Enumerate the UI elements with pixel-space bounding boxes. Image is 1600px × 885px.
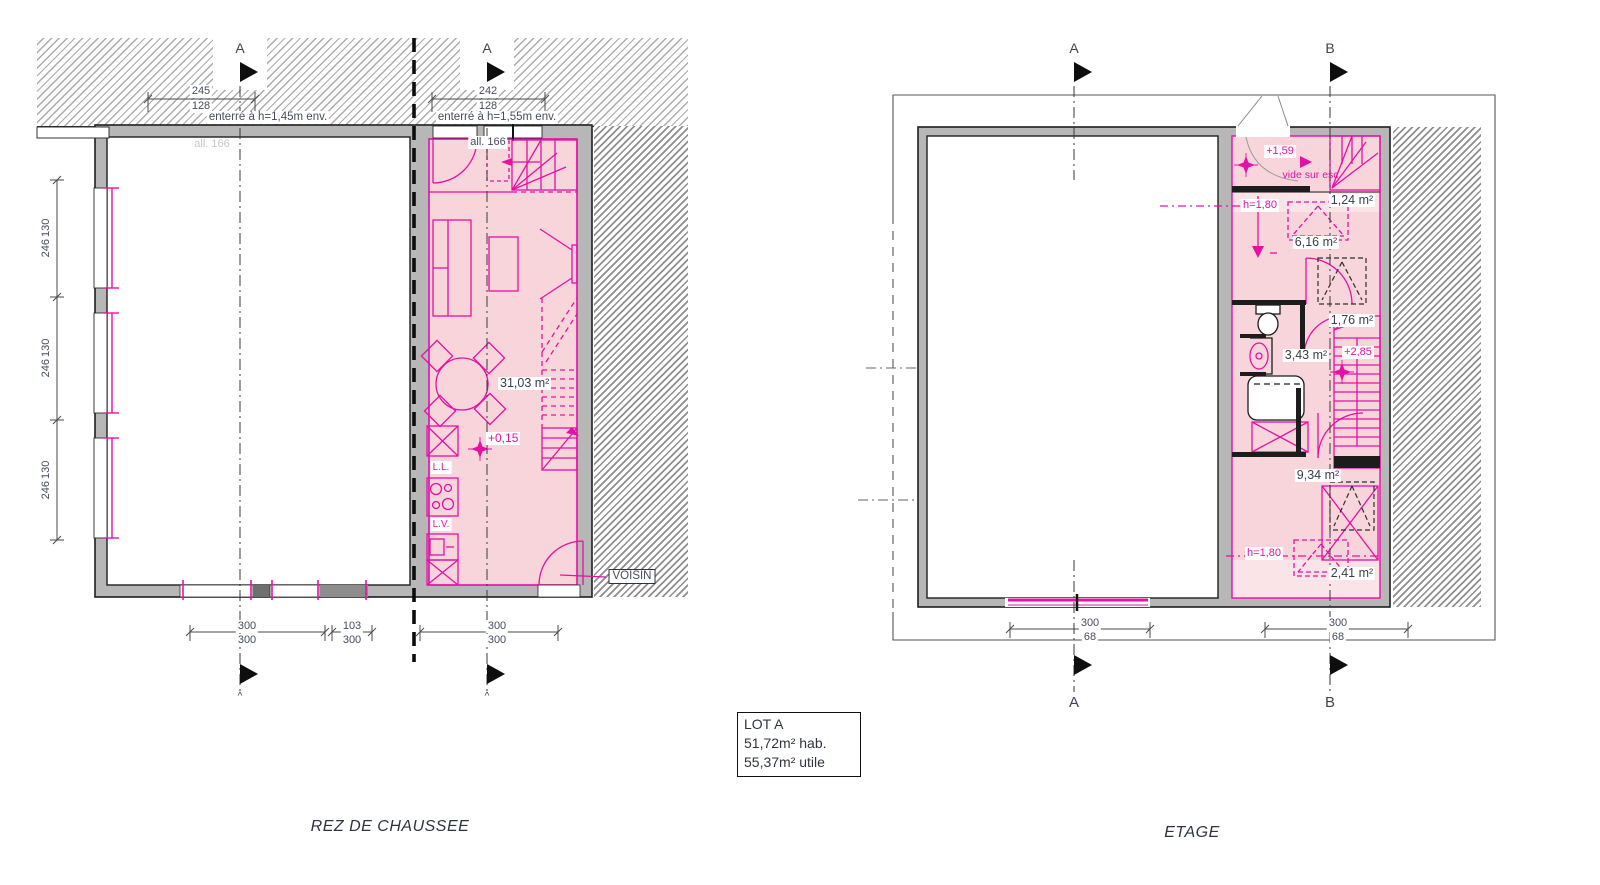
upper-void-label: vide sur esc. [1283, 169, 1342, 182]
ground-side-dim-1-bottom: 130 [40, 219, 52, 237]
ground-bdim3-bottom: 300 [486, 634, 508, 647]
upper-bdim2-top: 300 [1327, 617, 1349, 630]
ground-side-dim-2-top: 246 [40, 359, 52, 377]
ground-bdim2-bottom: 300 [341, 634, 363, 647]
ground-side-dim-2: 246 130 [40, 339, 52, 378]
ground-caret-right: ^ [485, 690, 490, 703]
upper-area-bath: 3,43 m² [1283, 349, 1329, 362]
upper-level-floor: +2,85 [1342, 346, 1374, 359]
upper-bdim1-top: 300 [1079, 617, 1101, 630]
upper-reference-lines [858, 368, 927, 500]
upper-floor-title: ETAGE [1164, 824, 1220, 842]
upper-area-bedroom: 9,34 m² [1295, 469, 1341, 482]
ground-building-walls [37, 125, 592, 597]
upper-area-closet-top: 1,24 m² [1329, 194, 1375, 207]
lot-area-utile: 55,37m² utile [744, 753, 854, 772]
ground-neighbor-label: VOISIN [609, 569, 656, 584]
ground-sill-label-faint: all. 166 [194, 138, 229, 151]
lot-area-hab: 51,72m² hab. [744, 734, 854, 753]
upper-section-marker-b-top: B [1325, 42, 1334, 55]
ground-washer-label: L.L. [431, 461, 452, 474]
ground-left-windows [94, 188, 107, 538]
upper-level-landing: +1,59 [1264, 145, 1296, 158]
ground-side-dim-3-top: 246 [40, 481, 52, 499]
lot-summary-box: LOT A 51,72m² hab. 55,37m² utile [737, 712, 861, 777]
lot-name: LOT A [744, 715, 854, 734]
ground-floor-title: REZ DE CHAUSSEE [311, 818, 470, 836]
upper-area-room-top: 6,16 m² [1293, 236, 1339, 249]
upper-dim-lines [1006, 622, 1412, 638]
upper-bdim2-bottom: 68 [1330, 631, 1346, 644]
ground-sill-label: all. 166 [468, 136, 507, 149]
ground-bdim1-bottom: 300 [236, 634, 258, 647]
ground-side-dim-3: 246 130 [40, 461, 52, 500]
ground-side-dim-3-bottom: 130 [40, 461, 52, 479]
upper-section-marker-b-bottom: B [1325, 696, 1335, 709]
ground-buried-note-right: enterré à h=1,55m env. [436, 111, 558, 124]
upper-height-bottom: h=1,80 [1245, 547, 1283, 560]
ground-side-dim-2-bottom: 130 [40, 339, 52, 357]
ground-dishwasher-label: L.V. [431, 518, 452, 531]
upper-bdim1-bottom: 68 [1082, 631, 1098, 644]
ground-dim-245: 245 [190, 85, 212, 98]
ground-level-label: +0,15 [486, 432, 520, 445]
ground-bdim1-top: 300 [236, 620, 258, 633]
ground-caret-left: ^ [238, 690, 243, 703]
upper-area-landing: 1,76 m² [1329, 314, 1375, 327]
upper-section-marker-a-top: A [1069, 42, 1078, 55]
floorplan-sheet: A A 245 128 242 128 enterré à h=1,45m en… [0, 0, 1600, 885]
ground-side-dim-1: 246 130 [40, 219, 52, 258]
ground-dim-242: 242 [477, 85, 499, 98]
upper-height-top: h=1,80 [1241, 199, 1279, 212]
ground-side-dim-1-top: 246 [40, 239, 52, 257]
ground-section-marker-a2: A [482, 42, 491, 55]
ground-bdim3-top: 300 [486, 620, 508, 633]
ground-bdim2-top: 103 [341, 620, 363, 633]
ground-area-living: 31,03 m² [498, 377, 551, 390]
ground-buried-note-left: enterré à h=1,45m env. [207, 111, 329, 124]
ground-section-marker-a1: A [235, 42, 244, 55]
upper-section-marker-a-bottom: A [1069, 696, 1079, 709]
upper-area-closet-bottom: 2,41 m² [1329, 567, 1375, 580]
